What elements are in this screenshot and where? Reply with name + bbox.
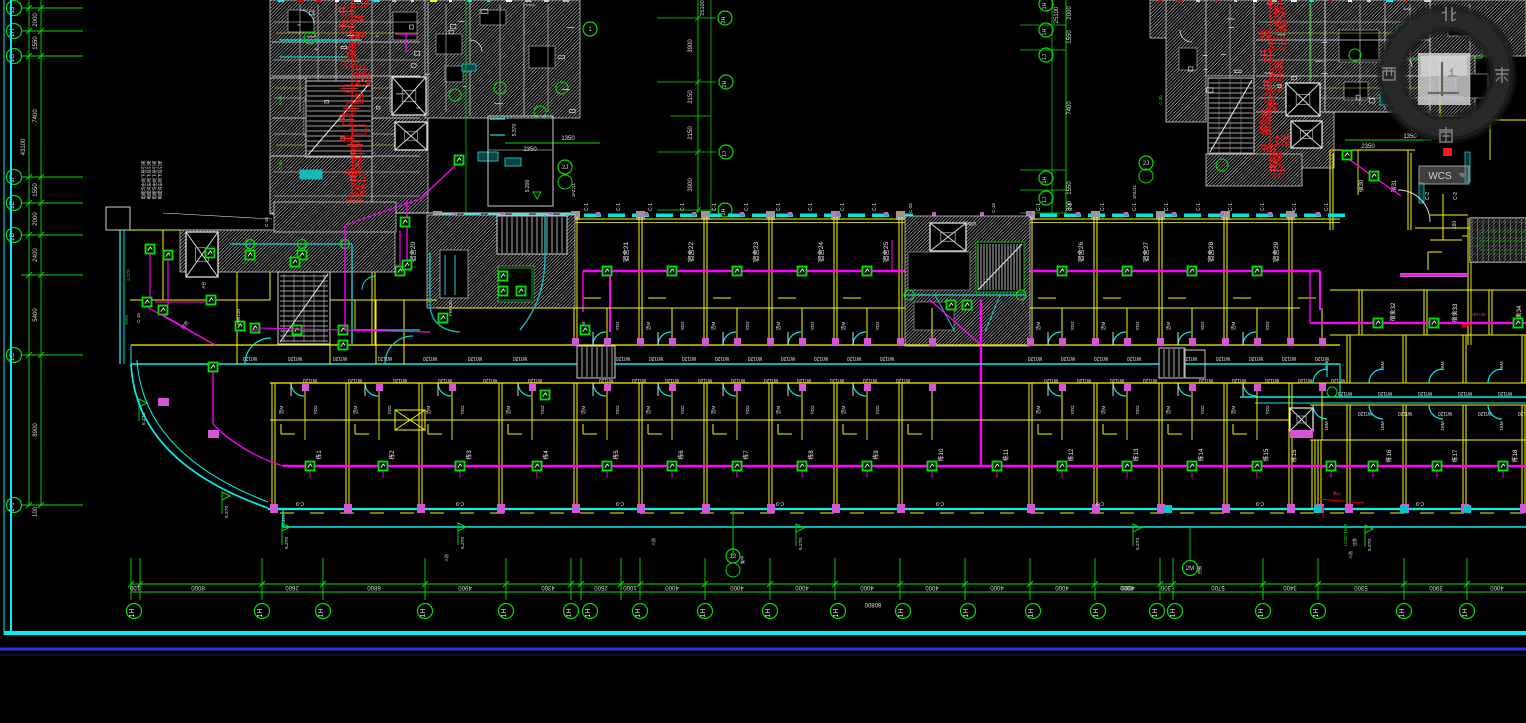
svg-text:YD2: YD2 [1135, 321, 1141, 331]
svg-text:WI120: WI120 [764, 377, 779, 383]
svg-text:3900: 3900 [1429, 584, 1443, 590]
svg-text:栋12: 栋12 [1067, 448, 1075, 461]
svg-text:宿舍26: 宿舍26 [1076, 242, 1085, 263]
svg-text:2000: 2000 [33, 212, 39, 226]
svg-text:WI120: WI120 [616, 355, 631, 361]
svg-text:100: 100 [129, 584, 140, 590]
svg-text:WI120: WI120 [863, 377, 878, 383]
svg-text:100: 100 [33, 506, 39, 517]
svg-text:WI120: WI120 [1232, 377, 1247, 383]
svg-text:宿舍25: 宿舍25 [881, 242, 890, 263]
svg-text:5.200: 5.200 [525, 180, 531, 193]
svg-text:栋14: 栋14 [1197, 448, 1205, 461]
svg-text:WI120: WI120 [1249, 355, 1264, 361]
svg-text:YD2: YD2 [1265, 405, 1271, 415]
svg-text:洁M: 洁M [278, 406, 285, 415]
svg-text:160: 160 [1452, 221, 1458, 230]
svg-text:洁M: 洁M [775, 322, 782, 331]
svg-text:YD2: YD2 [313, 405, 319, 415]
svg-text:洁M: 洁M [425, 406, 432, 415]
svg-text:C-1: C-1 [1132, 203, 1138, 211]
svg-text:C-1: C-1 [616, 203, 622, 211]
svg-text:C-1: C-1 [1068, 203, 1074, 211]
svg-text:2350: 2350 [1361, 144, 1375, 150]
svg-text:C-9: C-9 [1096, 500, 1104, 506]
svg-text:C-1: C-1 [584, 203, 590, 211]
svg-text:栋4: 栋4 [542, 450, 550, 460]
svg-text:C-1: C-1 [1100, 203, 1106, 211]
svg-text:栋18: 栋18 [1511, 449, 1519, 462]
svg-text:1FZJ11: 1FZJ11 [571, 182, 576, 197]
svg-text:C-2: C-2 [1425, 192, 1431, 200]
svg-text:2000: 2000 [1067, 6, 1073, 20]
svg-text:WI120: WI120 [1110, 377, 1125, 383]
svg-text:C-3b: C-3b [278, 95, 283, 105]
svg-text:WI120: WI120 [393, 377, 408, 383]
svg-text:栋17: 栋17 [1451, 449, 1459, 462]
svg-text:YD2: YD2 [810, 321, 816, 331]
svg-text:5.370: 5.370 [512, 124, 518, 137]
svg-text:WI120: WI120 [1398, 410, 1413, 416]
svg-text:8000: 8000 [191, 584, 205, 590]
svg-text:4000: 4000 [860, 584, 874, 590]
svg-text:洁M: 洁M [1035, 322, 1042, 331]
svg-text:5.270: 5.270 [460, 537, 466, 549]
svg-text:WI120: WI120 [715, 355, 730, 361]
svg-text:C-15: C-15 [136, 313, 141, 323]
svg-text:1FZJ11: 1FZJ11 [1132, 184, 1137, 199]
svg-text:1H: 1H [501, 609, 508, 618]
svg-text:4000: 4000 [990, 584, 1004, 590]
svg-text:5.270: 5.270 [1135, 538, 1141, 550]
svg-text:YD2: YD2 [1070, 321, 1076, 331]
svg-text:人防: 人防 [650, 538, 656, 546]
svg-text:3400: 3400 [1283, 584, 1297, 590]
svg-text:栋10: 栋10 [937, 448, 945, 461]
svg-text:1550: 1550 [1067, 181, 1073, 195]
svg-text:YD2: YD2 [875, 405, 881, 415]
svg-text:栋16: 栋16 [1385, 449, 1393, 462]
svg-text:25100: 25100 [700, 0, 706, 15]
svg-text:80800: 80800 [864, 601, 881, 607]
svg-text:WI120: WI120 [1044, 377, 1059, 383]
svg-text:4000: 4000 [665, 584, 679, 590]
svg-text:5300: 5300 [1354, 584, 1368, 590]
svg-text:WI120: WI120 [288, 355, 303, 361]
svg-text:YD2: YD2 [615, 405, 621, 415]
svg-text:WI120: WI120 [1216, 355, 1231, 361]
svg-text:YD2: YD2 [540, 405, 546, 415]
svg-text:4300: 4300 [541, 584, 555, 590]
svg-text:25100: 25100 [1054, 6, 1060, 23]
svg-text:WI120: WI120 [748, 355, 763, 361]
svg-text:WI120: WI120 [1378, 390, 1393, 396]
svg-text:2M: 2M [1186, 566, 1194, 572]
svg-text:WI120: WI120 [1282, 355, 1297, 361]
svg-text:1H: 1H [898, 609, 905, 618]
svg-text:WI120: WI120 [1143, 377, 1158, 383]
svg-text:2J: 2J [562, 165, 568, 171]
svg-text:洁M: 洁M [1100, 322, 1107, 331]
svg-text:1H: 1H [129, 609, 136, 618]
svg-text:2500: 2500 [594, 584, 608, 590]
svg-text:1350: 1350 [561, 136, 575, 142]
svg-text:5.270: 5.270 [224, 506, 230, 518]
svg-text:7400: 7400 [33, 109, 39, 123]
svg-text:WI120: WI120 [1028, 355, 1043, 361]
svg-text:C-1: C-1 [744, 203, 750, 211]
svg-text:4000: 4000 [1490, 584, 1504, 590]
svg-text:1H: 1H [1170, 609, 1177, 618]
svg-text:1H: 1H [318, 609, 325, 618]
svg-text:宿舍32: 宿舍32 [1389, 302, 1397, 321]
svg-text:WI120: WI120 [1458, 390, 1473, 396]
svg-text:4000: 4000 [730, 584, 744, 590]
svg-text:栋15: 栋15 [1262, 448, 1270, 461]
svg-text:3900: 3900 [688, 178, 694, 192]
svg-text:宿舍28: 宿舍28 [1206, 242, 1215, 263]
svg-text:1550: 1550 [1067, 30, 1073, 44]
svg-text:洁M: 洁M [840, 322, 847, 331]
svg-text:洁M: 洁M [1165, 406, 1172, 415]
svg-text:C-1: C-1 [776, 203, 782, 211]
svg-text:1H: 1H [1028, 609, 1035, 618]
svg-text:YD2: YD2 [1135, 405, 1141, 415]
svg-text:YD2: YD2 [1200, 321, 1206, 331]
svg-text:WI120: WI120 [513, 355, 528, 361]
svg-text:4000: 4000 [795, 584, 809, 590]
svg-text:栋9: 栋9 [872, 450, 880, 460]
svg-text:WI120: WI120 [1338, 390, 1353, 396]
svg-text:1H: 1H [1152, 609, 1159, 618]
svg-text:应急: 应急 [1351, 538, 1357, 546]
svg-text:栋3: 栋3 [465, 450, 473, 460]
svg-text:WI120: WI120 [333, 355, 348, 361]
svg-text:洁M: 洁M [775, 406, 782, 415]
svg-text:洁M: 洁M [645, 322, 652, 331]
svg-text:2000: 2000 [33, 13, 39, 27]
svg-text:C-1: C-1 [1196, 203, 1202, 211]
svg-text:WI120: WI120 [423, 355, 438, 361]
svg-text:电缆沟由地下层引来: 电缆沟由地下层引来 [157, 160, 164, 199]
svg-text:宿舍22: 宿舍22 [686, 242, 695, 263]
svg-text:栋15: 栋15 [1290, 449, 1298, 462]
svg-text:1H: 1H [635, 609, 642, 618]
svg-text:1H: 1H [420, 609, 427, 618]
svg-text:4000: 4000 [1121, 584, 1135, 590]
svg-text:人防: 人防 [443, 554, 449, 562]
svg-text:C-2: C-2 [1453, 192, 1459, 200]
svg-text:WI120: WI120 [797, 377, 812, 383]
svg-text:洁M: 洁M [710, 406, 717, 415]
svg-text:YD2: YD2 [1070, 405, 1076, 415]
svg-text:240+40: 240+40 [1470, 312, 1486, 317]
svg-text:宿舍20: 宿舍20 [408, 242, 417, 263]
svg-text:WI120: WI120 [731, 377, 746, 383]
svg-text:16M: 16M [1324, 421, 1330, 430]
svg-text:1H: 1H [963, 609, 970, 618]
svg-text:配电房: 配电房 [964, 220, 977, 227]
svg-text:WI120: WI120 [682, 355, 697, 361]
svg-text:C-1: C-1 [1164, 203, 1170, 211]
svg-text:4000: 4000 [1055, 584, 1069, 590]
svg-text:1J: 1J [1042, 197, 1048, 203]
svg-text:6800: 6800 [367, 584, 381, 590]
svg-text:YD2: YD2 [745, 321, 751, 331]
svg-text:防火: 防火 [1333, 490, 1341, 496]
svg-text:43100: 43100 [21, 138, 27, 155]
svg-text:C-9: C-9 [776, 500, 784, 506]
svg-text:WI120: WI120 [1498, 390, 1513, 396]
svg-text:WI120: WI120 [303, 377, 318, 383]
svg-text:C-1: C-1 [1292, 203, 1298, 211]
svg-text:1000: 1000 [124, 314, 129, 325]
svg-text:C-1: C-1 [840, 203, 846, 211]
svg-text:栋5: 栋5 [612, 450, 620, 460]
svg-text:WI120: WI120 [1418, 390, 1433, 396]
svg-text:16M: 16M [1440, 361, 1446, 370]
svg-text:WI120: WI120 [847, 355, 862, 361]
svg-text:WI120: WI120 [1127, 355, 1142, 361]
svg-text:C-3b: C-3b [1158, 95, 1163, 105]
svg-text:人防: 人防 [1347, 551, 1353, 559]
svg-text:1550: 1550 [33, 183, 39, 197]
svg-text:C-1: C-1 [648, 203, 654, 211]
svg-text:洁M: 洁M [840, 406, 847, 415]
svg-text:WI120: WI120 [632, 377, 647, 383]
svg-text:YD2: YD2 [387, 405, 393, 415]
svg-text:洁M: 洁M [1230, 322, 1237, 331]
svg-text:1H: 1H [1462, 609, 1469, 618]
svg-text:1H: 1H [257, 609, 264, 618]
svg-text:WI120: WI120 [665, 377, 680, 383]
svg-text:1J: 1J [722, 151, 728, 157]
svg-text:A台: A台 [200, 282, 207, 289]
svg-text:YD2: YD2 [1265, 321, 1271, 331]
svg-text:C-16: C-16 [264, 217, 269, 227]
svg-text:C-9: C-9 [616, 500, 624, 506]
svg-text:1H: 1H [765, 609, 772, 618]
svg-text:WI120: WI120 [698, 377, 713, 383]
svg-text:WI120: WI120 [1298, 377, 1313, 383]
svg-text:1H: 1H [1399, 609, 1406, 618]
svg-text:1000: 1000 [623, 584, 637, 590]
svg-text:洁M: 洁M [1100, 406, 1107, 415]
svg-text:5400: 5400 [33, 308, 39, 322]
svg-text:1H: 1H [1313, 609, 1320, 618]
svg-text:7400: 7400 [1067, 101, 1073, 115]
svg-text:栋2: 栋2 [388, 450, 396, 460]
svg-text:栋7: 栋7 [742, 450, 750, 460]
svg-text:8900: 8900 [33, 423, 39, 437]
svg-text:C-1: C-1 [1228, 203, 1234, 211]
svg-text:16M: 16M [1380, 361, 1386, 370]
svg-text:WI120: WI120 [1094, 355, 1109, 361]
svg-text:2150: 2150 [688, 126, 694, 140]
svg-text:WI120: WI120 [468, 355, 483, 361]
svg-text:5.270: 5.270 [284, 537, 290, 549]
svg-text:WI120: WI120 [483, 377, 498, 383]
svg-text:WI120: WI120 [1061, 355, 1076, 361]
svg-text:宿舍33: 宿舍33 [1451, 303, 1459, 322]
svg-text:洁M: 洁M [1035, 406, 1042, 415]
svg-text:洁M: 洁M [1230, 406, 1237, 415]
svg-text:YD2: YD2 [680, 321, 686, 331]
svg-text:C-26: C-26 [908, 203, 913, 213]
svg-text:C-1: C-1 [872, 203, 878, 211]
svg-text:WI120: WI120 [1331, 377, 1346, 383]
svg-text:1H: 1H [1093, 609, 1100, 618]
svg-text:洁M: 洁M [645, 406, 652, 415]
svg-text:5.270: 5.270 [798, 538, 804, 550]
svg-text:洁M: 洁M [1165, 322, 1172, 331]
svg-text:FWI120: FWI120 [236, 309, 241, 325]
svg-text:宿舍27: 宿舍27 [1141, 242, 1150, 263]
svg-text:洁M: 洁M [710, 322, 717, 331]
svg-text:3900: 3900 [688, 39, 694, 53]
svg-text:C-9: C-9 [936, 500, 944, 506]
svg-text:C-1: C-1 [1036, 203, 1042, 211]
svg-text:2400: 2400 [33, 248, 39, 262]
svg-text:YD2: YD2 [615, 321, 621, 331]
svg-text:YD2: YD2 [680, 405, 686, 415]
svg-text:WI120: WI120 [438, 377, 453, 383]
svg-text:WI120: WI120 [896, 377, 911, 383]
svg-text:YD2: YD2 [745, 405, 751, 415]
svg-text:4900: 4900 [458, 584, 472, 590]
svg-text:1H: 1H [566, 609, 573, 618]
svg-text:16M: 16M [1499, 361, 1505, 370]
svg-text:C-1: C-1 [808, 203, 814, 211]
svg-text:C-1: C-1 [712, 203, 718, 211]
svg-text:WI120: WI120 [649, 355, 664, 361]
svg-text:2H: 2H [721, 16, 727, 23]
svg-text:1H: 1H [1042, 176, 1048, 183]
svg-text:WCS: WCS [1428, 171, 1452, 182]
svg-text:4000: 4000 [925, 584, 939, 590]
svg-text:C-9: C-9 [296, 500, 304, 506]
svg-text:16M: 16M [1499, 421, 1505, 430]
svg-text:宿舍29: 宿舍29 [1271, 242, 1280, 263]
svg-text:16M: 16M [1380, 421, 1386, 430]
svg-text:2600: 2600 [285, 584, 299, 590]
svg-text:栋6: 栋6 [677, 450, 685, 460]
svg-text:5.270: 5.270 [1367, 539, 1373, 551]
svg-text:12: 12 [730, 554, 737, 560]
svg-text:2150: 2150 [688, 90, 694, 104]
svg-text:16M: 16M [1440, 421, 1446, 430]
svg-text:WI120: WI120 [1438, 410, 1453, 416]
svg-text:WI120: WI120 [830, 377, 845, 383]
svg-text:WI120: WI120 [528, 377, 543, 383]
svg-text:1H: 1H [833, 609, 840, 618]
svg-text:集中: 集中 [739, 556, 745, 564]
svg-text:洁M: 洁M [580, 406, 587, 415]
svg-text:栋11: 栋11 [1002, 448, 1010, 461]
svg-text:洁M: 洁M [352, 406, 359, 415]
svg-text:1H: 1H [1042, 2, 1048, 9]
svg-text:宿舍23: 宿舍23 [751, 242, 760, 263]
svg-text:5700: 5700 [1211, 584, 1225, 590]
svg-text:C-9: C-9 [1256, 500, 1264, 506]
svg-text:300: 300 [1160, 584, 1171, 590]
svg-text:2H: 2H [722, 80, 728, 87]
svg-text:1J: 1J [1042, 54, 1048, 60]
svg-text:洁M: 洁M [505, 406, 512, 415]
svg-text:C-9: C-9 [1416, 500, 1424, 506]
svg-text:WI120: WI120 [1077, 377, 1092, 383]
svg-text:宿舍21: 宿舍21 [621, 242, 630, 263]
svg-text:宿30: 宿30 [1357, 179, 1365, 192]
svg-text:C-9: C-9 [456, 500, 464, 506]
svg-text:2H: 2H [721, 208, 727, 215]
svg-text:LD60*1560: LD60*1560 [1343, 523, 1348, 546]
svg-text:1550: 1550 [33, 36, 39, 50]
svg-text:WI120: WI120 [348, 377, 363, 383]
svg-text:YD2: YD2 [1200, 405, 1206, 415]
svg-text:C-1: C-1 [1260, 203, 1266, 211]
svg-text:2J: 2J [1143, 161, 1149, 167]
svg-text:C-1: C-1 [1324, 203, 1330, 211]
svg-text:栋13: 栋13 [1132, 448, 1140, 461]
svg-text:YD2: YD2 [810, 405, 816, 415]
svg-text:控制: 控制 [1196, 566, 1202, 574]
svg-text:WI120: WI120 [1315, 355, 1330, 361]
svg-text:1H: 1H [1258, 609, 1265, 618]
svg-text:WI120: WI120 [1265, 377, 1280, 383]
svg-text:栋1: 栋1 [315, 450, 323, 460]
svg-text:C-1: C-1 [680, 203, 686, 211]
svg-text:C-3b: C-3b [278, 160, 283, 170]
svg-text:WI120: WI120 [781, 355, 796, 361]
svg-text:WI120: WI120 [814, 355, 829, 361]
svg-text:YD2: YD2 [875, 321, 881, 331]
svg-text:C-16: C-16 [991, 203, 996, 213]
svg-text:5.270: 5.270 [126, 269, 131, 281]
svg-text:WI120: WI120 [880, 355, 895, 361]
svg-text:1H: 1H [1042, 28, 1048, 35]
svg-text:宿舍24: 宿舍24 [816, 242, 825, 263]
svg-text:1H: 1H [585, 609, 592, 618]
svg-text:栋8: 栋8 [807, 450, 815, 460]
svg-text:YD2: YD2 [460, 405, 466, 415]
svg-text:1H: 1H [700, 609, 707, 618]
